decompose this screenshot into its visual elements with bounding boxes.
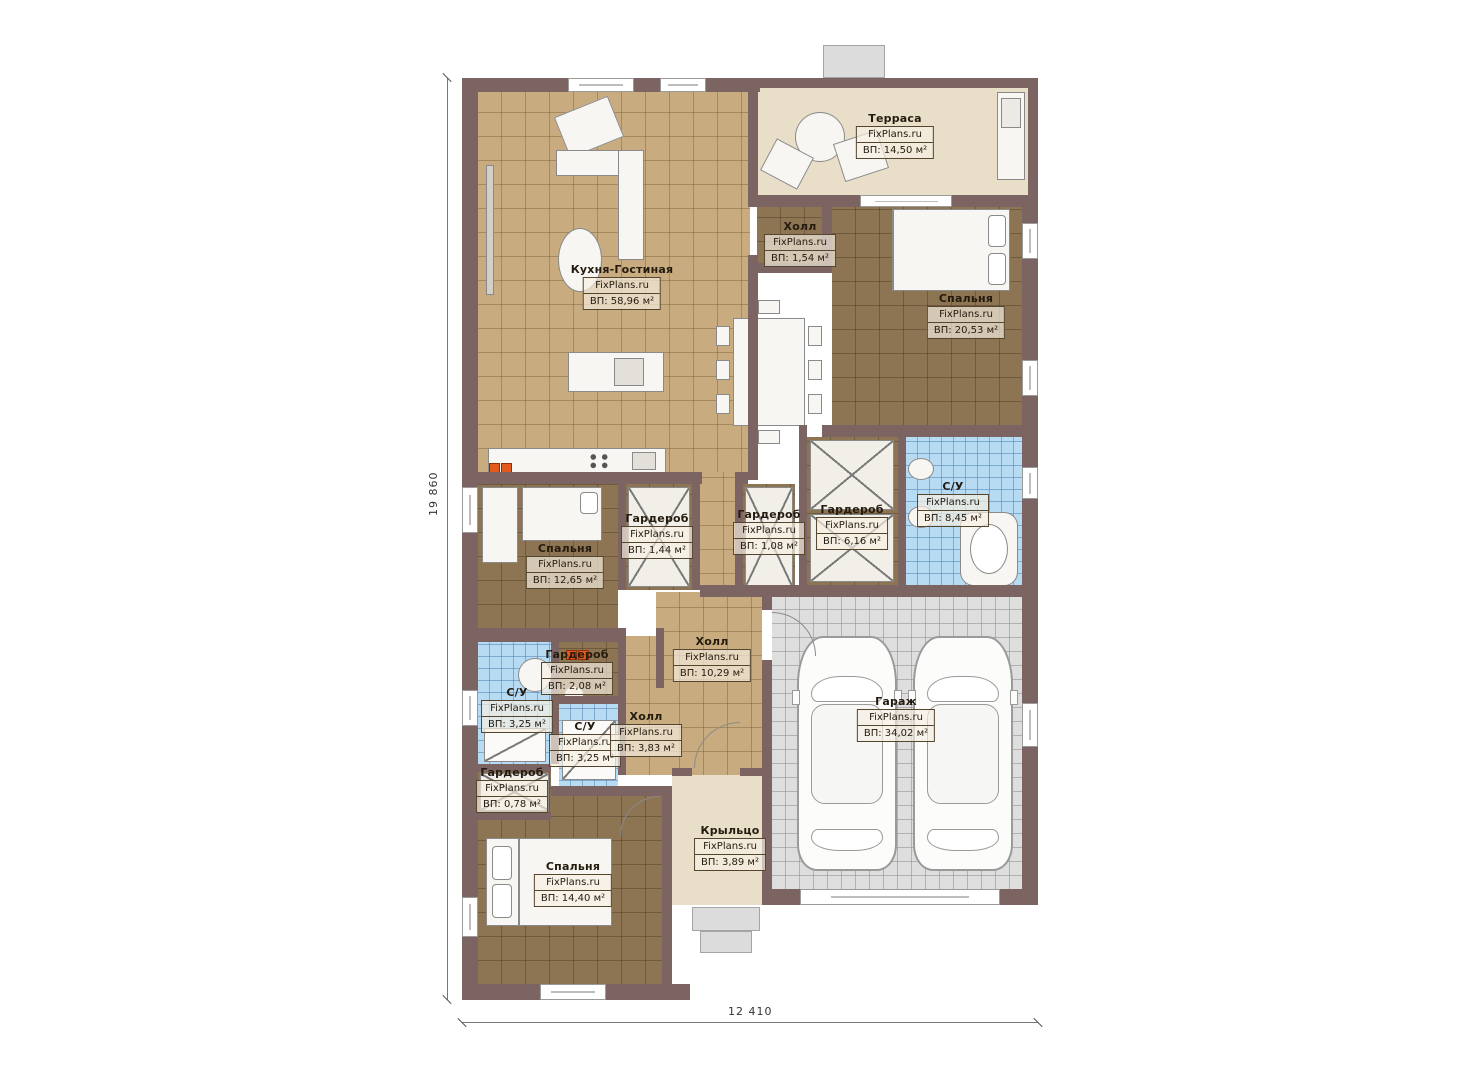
wall-wardrobe144-right: [692, 484, 700, 590]
room-name: Крыльцо: [694, 824, 766, 837]
room-name: Холл: [610, 710, 682, 723]
porch-step-2: [700, 931, 752, 953]
dimension-line-vertical: [447, 78, 448, 1000]
room-area: ВП: 1,54 м²: [765, 251, 835, 266]
room-brand: FixPlans.ru: [542, 663, 612, 679]
floor-plan-canvas: Кухня-Гостиная FixPlans.ruВП: 58,96 м² Т…: [0, 0, 1474, 1080]
room-brand: FixPlans.ru: [928, 307, 1004, 323]
room-brand: FixPlans.ru: [857, 127, 933, 143]
window-right-3: [1022, 467, 1038, 499]
wall-terrace-right: [1028, 78, 1038, 198]
wall-garage-left-a: [762, 597, 772, 610]
room-label-wardrobe-616: Гардероб FixPlans.ruВП: 6,16 м²: [816, 503, 888, 550]
wardrobe-cabinet: [482, 487, 518, 563]
dining-chair: [758, 300, 780, 314]
window-left-1: [462, 487, 478, 533]
room-brand: FixPlans.ru: [674, 650, 750, 666]
room-area: ВП: 1,08 м²: [734, 539, 804, 554]
room-brand: FixPlans.ru: [817, 518, 887, 534]
room-name: Холл: [673, 635, 751, 648]
car-rear-window: [927, 829, 999, 851]
room-name: Гараж: [857, 695, 935, 708]
room-label-terrace: Терраса FixPlans.ruВП: 14,50 м²: [856, 112, 934, 159]
wall-wardrobe208-bottom: [559, 696, 618, 704]
wardrobe-unit: [810, 440, 894, 510]
room-name: Гардероб: [621, 512, 693, 525]
wall-outer-right: [1022, 195, 1038, 905]
stove-icon: [586, 451, 612, 471]
room-label-bathroom-1: С/У FixPlans.ruВП: 8,45 м²: [917, 480, 989, 527]
window-top-1: [568, 78, 634, 92]
porch-step-1: [692, 907, 760, 931]
wall-porch-top-a: [672, 768, 692, 776]
dimension-label-height: 19 860: [427, 472, 440, 517]
terrace-step: [823, 45, 885, 78]
dining-chair: [808, 394, 822, 414]
room-area: ВП: 2,08 м²: [542, 679, 612, 694]
room-area: ВП: 3,83 м²: [611, 741, 681, 756]
room-area: ВП: 8,45 м²: [918, 511, 988, 526]
room-area: ВП: 34,02 м²: [858, 726, 934, 741]
room-brand: FixPlans.ru: [765, 235, 835, 251]
room-label-porch: Крыльцо FixPlans.ruВП: 3,89 м²: [694, 824, 766, 871]
pillow: [580, 492, 598, 514]
dimension-label-width: 12 410: [728, 1005, 773, 1018]
room-area: ВП: 58,96 м²: [584, 294, 660, 309]
room-brand: FixPlans.ru: [482, 701, 552, 717]
room-area: ВП: 6,16 м²: [817, 534, 887, 549]
room-area: ВП: 20,53 м²: [928, 323, 1004, 338]
pillow: [492, 846, 512, 880]
room-name: Спальня: [927, 292, 1005, 305]
garage-door-opening: [800, 889, 1000, 905]
room-area: ВП: 1,44 м²: [622, 543, 692, 558]
room-brand: FixPlans.ru: [695, 839, 765, 855]
window-right-1: [1022, 223, 1038, 259]
window-top-2: [660, 78, 706, 92]
blanket-line: [518, 838, 520, 926]
wall-bedroom3-right: [662, 786, 672, 984]
room-area: ВП: 3,89 м²: [695, 855, 765, 870]
car-mirror: [792, 690, 800, 705]
window-terrace-door: [860, 195, 952, 207]
room-label-kitchen-living: Кухня-Гостиная FixPlans.ruВП: 58,96 м²: [571, 263, 674, 310]
car: [797, 636, 897, 871]
pillow: [988, 215, 1006, 247]
wall-bedroom1-bottom: [822, 425, 1022, 437]
window-left-2: [462, 690, 478, 726]
wall-kitchen-right-b: [748, 255, 758, 480]
dining-chair: [716, 326, 730, 346]
dining-table: [733, 318, 805, 426]
floor-corridor: [700, 472, 737, 597]
wall-porch-top-b: [740, 768, 762, 776]
wall-garage-top: [700, 585, 1022, 597]
room-brand: FixPlans.ru: [611, 725, 681, 741]
bathtub-basin: [970, 524, 1008, 574]
wall-bedroom2-bottom: [478, 628, 626, 642]
room-label-garage: Гараж FixPlans.ruВП: 34,02 м²: [857, 695, 935, 742]
room-brand: FixPlans.ru: [527, 557, 603, 573]
sofa-seat-side: [618, 150, 644, 260]
room-name: Спальня: [526, 542, 604, 555]
room-brand: FixPlans.ru: [622, 527, 692, 543]
wall-kitchen-right-a: [748, 92, 758, 207]
grill-top: [1001, 98, 1021, 128]
room-label-hall-383: Холл FixPlans.ruВП: 3,83 м²: [610, 710, 682, 757]
dining-chair: [716, 360, 730, 380]
room-brand: FixPlans.ru: [858, 710, 934, 726]
room-name: С/У: [917, 480, 989, 493]
room-name: Гардероб: [733, 508, 805, 521]
room-name: Гардероб: [541, 648, 613, 661]
room-area: ВП: 14,50 м²: [857, 143, 933, 158]
wall-wardrobe078-bottom: [478, 812, 551, 820]
room-area: ВП: 12,65 м²: [527, 573, 603, 588]
room-label-wardrobe-108: Гардероб FixPlans.ruВП: 1,08 м²: [733, 508, 805, 555]
room-label-bedroom-2: Спальня FixPlans.ruВП: 12,65 м²: [526, 542, 604, 589]
wall-kitchen-bottom-b: [735, 472, 748, 484]
room-name: Холл: [764, 220, 836, 233]
wall-wardrobe-bath-divider: [898, 437, 906, 585]
window-bottom-1: [540, 984, 606, 1000]
dining-chair: [808, 326, 822, 346]
room-name: Спальня: [534, 860, 612, 873]
blanket-line: [892, 209, 894, 291]
room-brand: FixPlans.ru: [918, 495, 988, 511]
room-label-hall-small: Холл FixPlans.ruВП: 1,54 м²: [764, 220, 836, 267]
room-brand: FixPlans.ru: [477, 781, 547, 797]
room-label-wardrobe-208: Гардероб FixPlans.ruВП: 2,08 м²: [541, 648, 613, 695]
window-right-2: [1022, 360, 1038, 396]
wall-bedroom3-top: [551, 786, 671, 796]
room-label-bedroom-3: Спальня FixPlans.ruВП: 14,40 м²: [534, 860, 612, 907]
car-mirror: [1010, 690, 1018, 705]
room-label-wardrobe-144: Гардероб FixPlans.ruВП: 1,44 м²: [621, 512, 693, 559]
room-area: ВП: 10,29 м²: [674, 666, 750, 681]
car-windshield: [927, 676, 999, 702]
wall-terrace-top: [755, 78, 1038, 88]
kitchen-sink: [632, 452, 656, 470]
sink: [908, 458, 934, 480]
room-name: Гардероб: [816, 503, 888, 516]
car: [913, 636, 1013, 871]
wall-outer-left: [462, 78, 478, 1000]
dining-chair: [758, 430, 780, 444]
shower-tray: [484, 728, 546, 762]
wall-garage-left-b: [762, 660, 772, 775]
room-brand: FixPlans.ru: [584, 278, 660, 294]
room-name: Терраса: [856, 112, 934, 125]
island-sink: [614, 358, 644, 386]
window-left-3: [462, 897, 478, 937]
room-name: Кухня-Гостиная: [571, 263, 674, 276]
wall-kitchen-bottom-a: [478, 472, 702, 484]
room-label-bedroom-1: Спальня FixPlans.ruВП: 20,53 м²: [927, 292, 1005, 339]
room-label-hall-main: Холл FixPlans.ruВП: 10,29 м²: [673, 635, 751, 682]
dining-chair: [716, 394, 730, 414]
dimension-line-horizontal: [462, 1022, 1038, 1023]
car-rear-window: [811, 829, 883, 851]
room-brand: FixPlans.ru: [535, 875, 611, 891]
pillow: [988, 253, 1006, 285]
room-brand: FixPlans.ru: [734, 523, 804, 539]
room-label-wardrobe-078: Гардероб FixPlans.ruВП: 0,78 м²: [476, 766, 548, 813]
car-roof: [927, 704, 999, 804]
room-area: ВП: 14,40 м²: [535, 891, 611, 906]
pillow: [492, 884, 512, 918]
room-name: Гардероб: [476, 766, 548, 779]
room-area: ВП: 0,78 м²: [477, 797, 547, 812]
wall-hall383-right: [656, 628, 664, 688]
tv-cabinet: [486, 165, 494, 295]
window-right-4: [1022, 703, 1038, 747]
dining-chair: [808, 360, 822, 380]
room-area: ВП: 3,25 м²: [482, 717, 552, 732]
